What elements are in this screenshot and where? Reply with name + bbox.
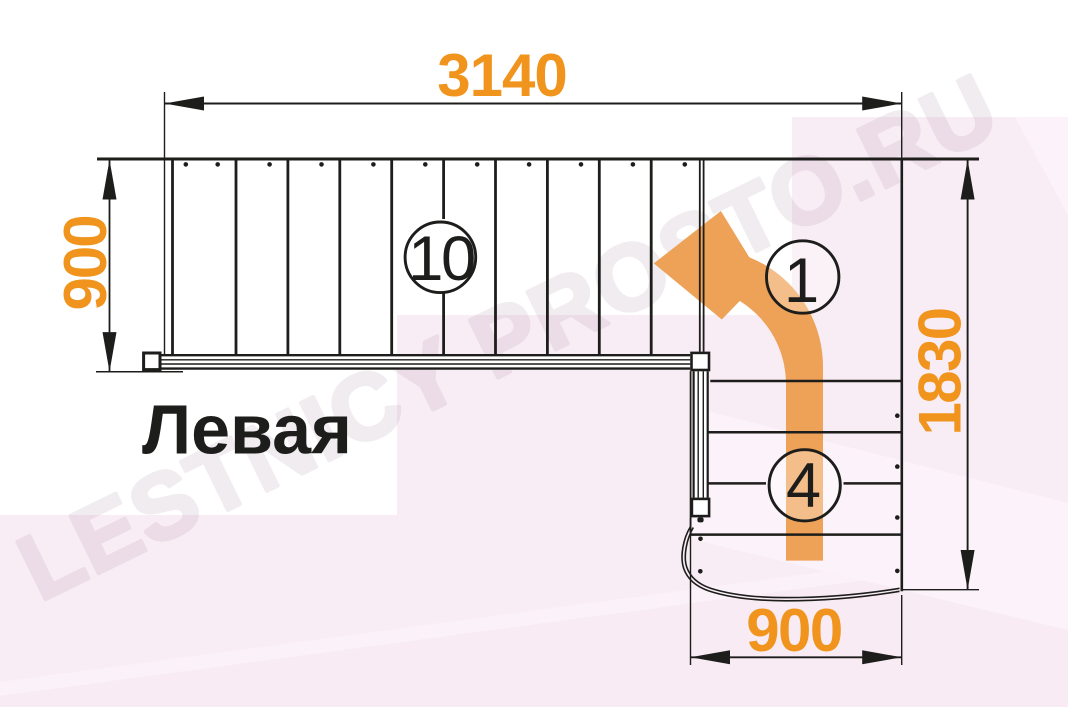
svg-text:10: 10 [408, 224, 474, 294]
svg-text:3140: 3140 [437, 42, 566, 109]
svg-text:4: 4 [786, 451, 821, 521]
svg-text:1: 1 [784, 246, 819, 316]
svg-text:900: 900 [52, 216, 119, 310]
svg-text:Левая: Левая [142, 391, 352, 469]
svg-text:1830: 1830 [907, 308, 974, 435]
svg-text:900: 900 [746, 597, 842, 664]
